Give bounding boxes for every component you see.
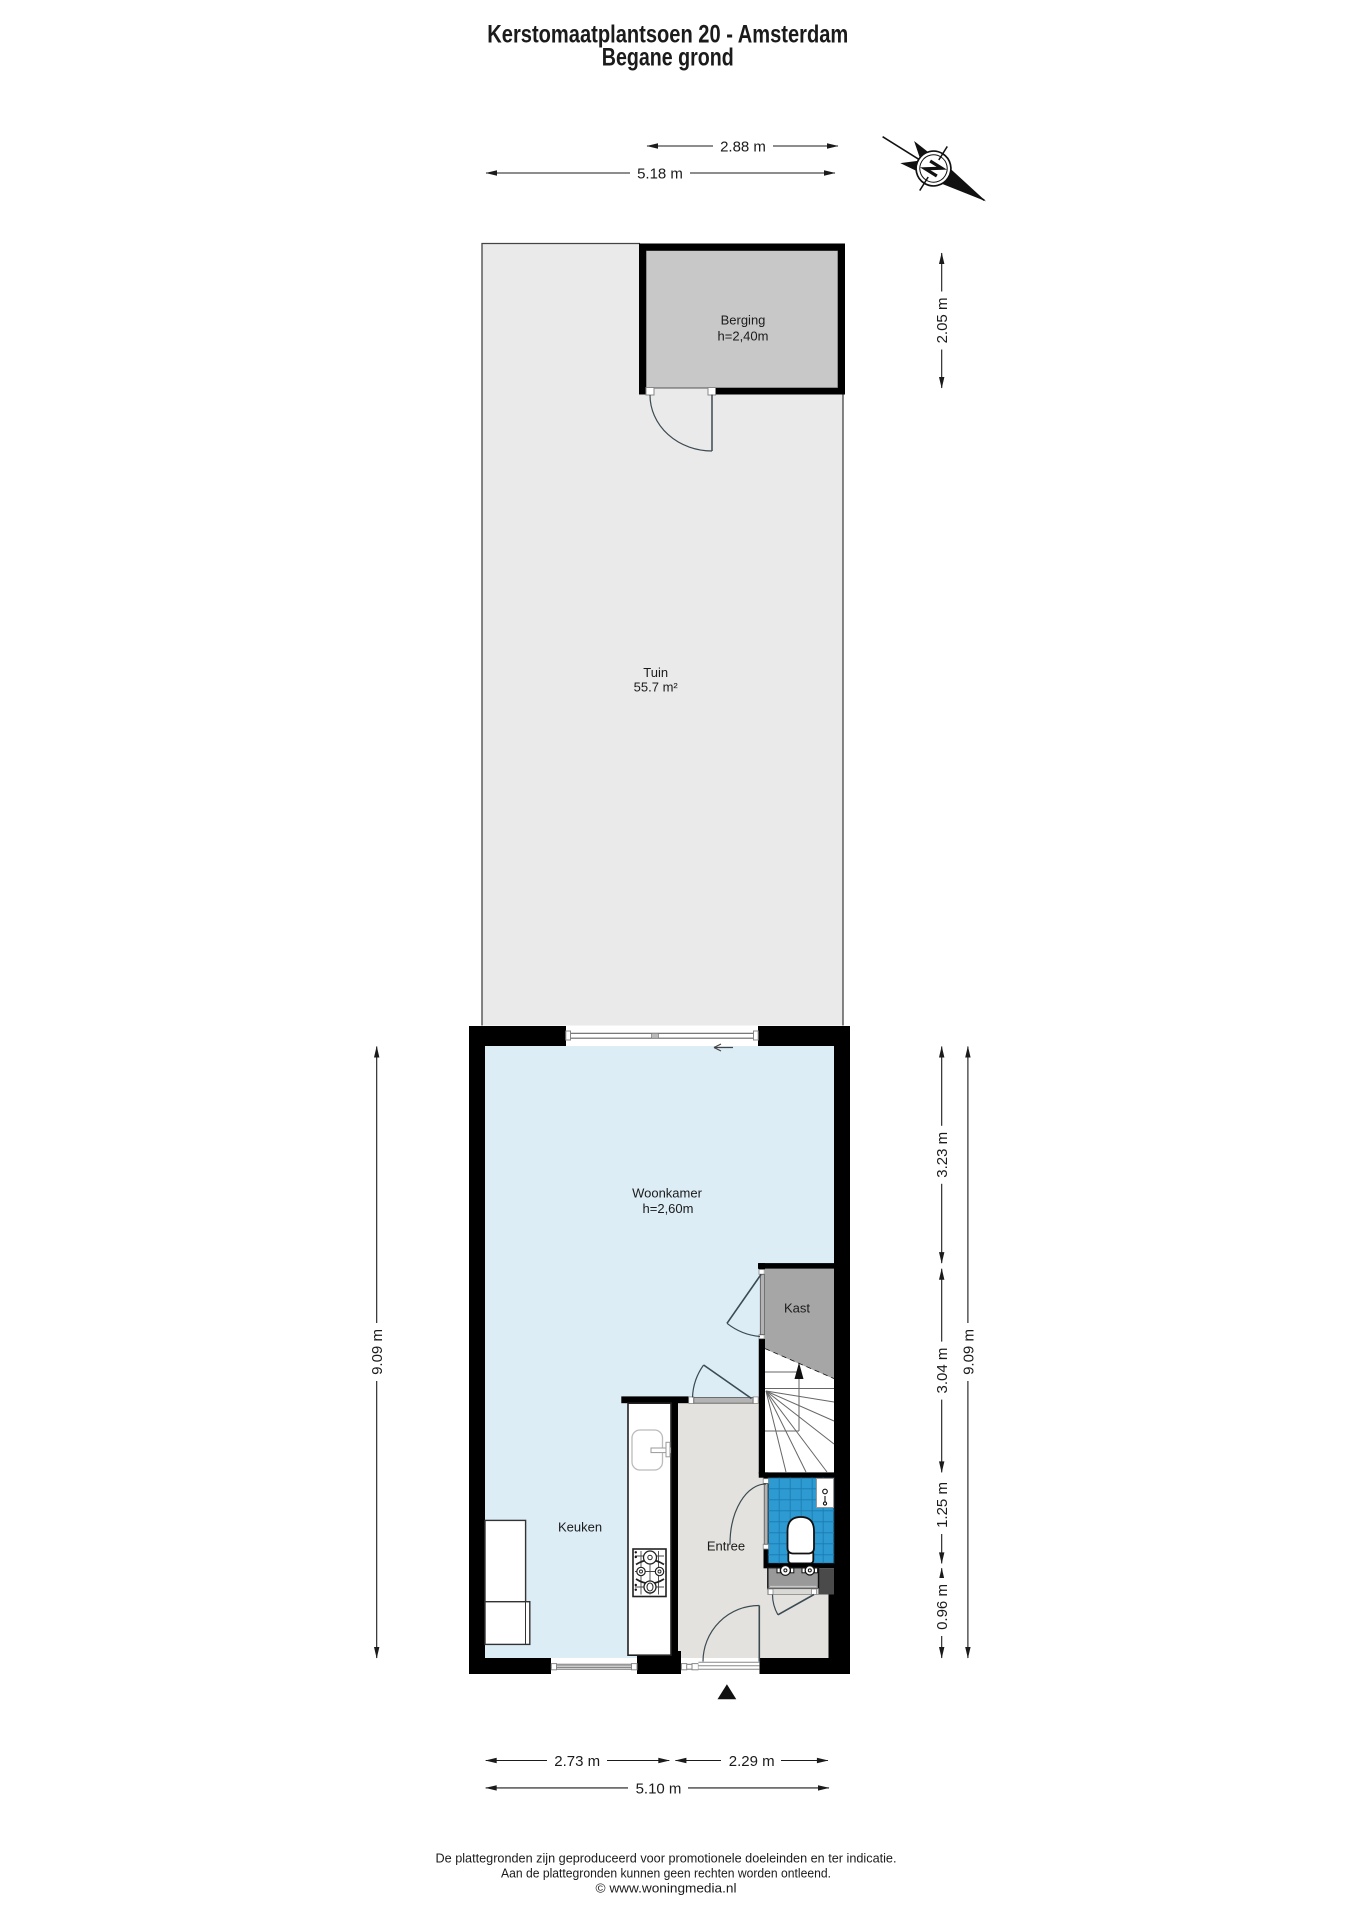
svg-text:2.29 m: 2.29 m [729,1753,775,1770]
svg-text:Begane grond: Begane grond [602,44,734,72]
svg-text:Kast: Kast [784,1301,810,1316]
svg-text:5.18 m: 5.18 m [637,166,683,183]
svg-text:3.23 m: 3.23 m [934,1132,951,1178]
svg-text:2.73 m: 2.73 m [554,1753,600,1770]
svg-text:h=2,60m: h=2,60m [643,1201,694,1216]
svg-text:h=2,40m: h=2,40m [718,329,769,344]
svg-text:2.05 m: 2.05 m [934,298,951,344]
svg-text:De plattegronden zijn geproduc: De plattegronden zijn geproduceerd voor … [436,1851,897,1866]
svg-text:55.7 m²: 55.7 m² [634,680,679,695]
svg-text:9.09 m: 9.09 m [369,1329,386,1375]
svg-text:9.09 m: 9.09 m [960,1329,977,1375]
svg-text:2.88 m: 2.88 m [720,139,766,156]
svg-text:3.04 m: 3.04 m [934,1348,951,1394]
svg-text:© www.woningmedia.nl: © www.woningmedia.nl [596,1881,737,1896]
svg-text:5.10 m: 5.10 m [636,1780,682,1797]
svg-text:Tuin: Tuin [643,665,668,680]
svg-text:Aan de plattegronden kunnen ge: Aan de plattegronden kunnen geen rechten… [501,1866,831,1881]
svg-text:Berging: Berging [721,313,766,328]
svg-text:Woonkamer: Woonkamer [632,1186,703,1201]
svg-text:0.96 m: 0.96 m [934,1584,951,1630]
svg-text:Entree: Entree [707,1539,745,1554]
svg-text:1.25 m: 1.25 m [934,1482,951,1528]
svg-text:Keuken: Keuken [558,1520,602,1535]
